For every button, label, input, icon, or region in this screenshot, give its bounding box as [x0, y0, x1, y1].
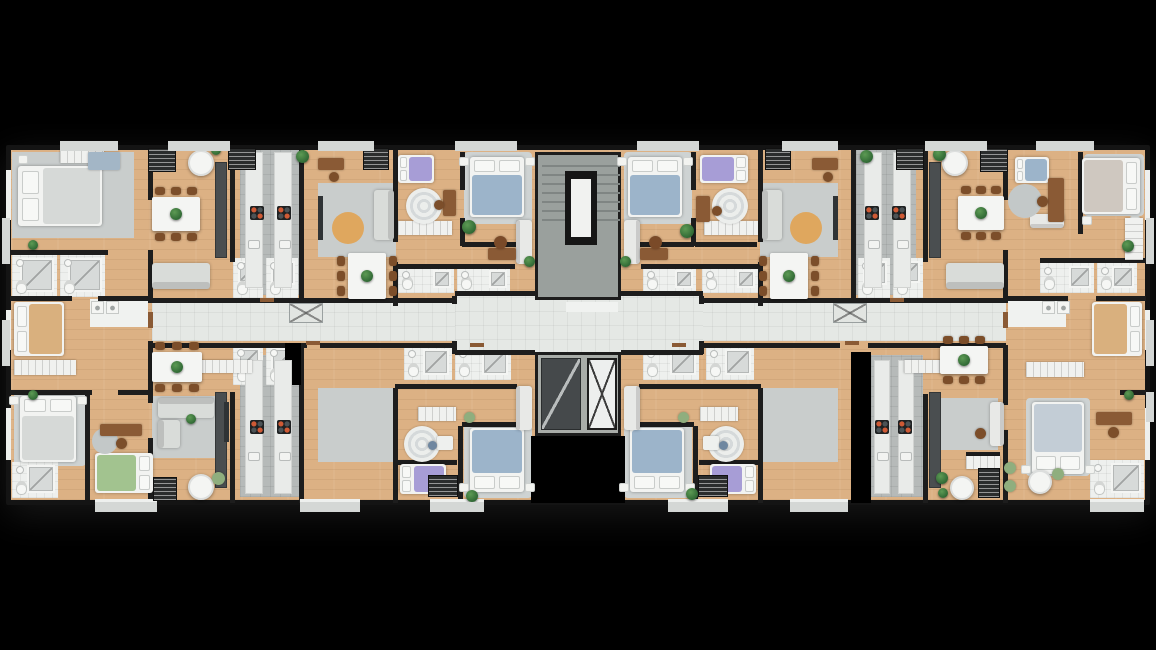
bed-pillow — [499, 476, 520, 489]
balcony-tab — [60, 141, 118, 151]
bed-duvet — [1084, 160, 1123, 212]
shower — [423, 349, 449, 375]
sofa — [990, 402, 1004, 446]
bed-pillow — [745, 466, 754, 477]
kitchen-counter — [864, 152, 882, 288]
stair-exit-mat — [566, 302, 618, 312]
toilet — [16, 481, 27, 495]
potted-plant — [524, 256, 535, 267]
dining-chair — [171, 187, 181, 195]
dining-chair — [187, 233, 197, 241]
kitchen-sink — [279, 452, 291, 461]
toilet — [16, 280, 27, 294]
ac-grill — [363, 148, 389, 170]
dining-chair — [337, 286, 345, 296]
pouf-green — [464, 412, 475, 423]
dining-chair — [991, 186, 1001, 194]
bed-pillow — [1130, 306, 1140, 327]
wall-segment — [230, 392, 235, 503]
bed — [1082, 158, 1140, 214]
dining-chair — [975, 376, 985, 384]
kitchen-counter — [274, 152, 292, 288]
bed-pillow — [400, 157, 407, 168]
stairwell — [535, 152, 621, 300]
bathroom-zone — [12, 462, 58, 498]
ac-grill — [896, 148, 924, 170]
wall-segment — [10, 250, 108, 255]
bathroom-zone — [398, 267, 454, 293]
bed-duvet — [702, 157, 734, 181]
door-leaf — [260, 298, 274, 302]
balcony-tab — [430, 502, 484, 512]
bathroom-zone — [12, 255, 57, 297]
dining-chair — [759, 256, 767, 266]
balcony-tab — [668, 502, 728, 512]
bed-pillow — [745, 480, 754, 491]
balcony-tab — [1036, 141, 1094, 151]
sofa-back — [516, 220, 520, 264]
bed-duvet — [97, 455, 136, 491]
wall-segment — [455, 291, 535, 296]
bathroom-zone — [643, 267, 696, 293]
door-leaf — [1003, 312, 1008, 328]
bed-pillow — [402, 480, 411, 491]
wall-segment — [320, 343, 457, 348]
toilet — [710, 363, 721, 377]
table-plant — [783, 270, 795, 282]
bath-sink — [237, 349, 245, 357]
potted-plant — [620, 256, 631, 267]
pouf-brown — [494, 236, 507, 249]
washing-machine — [1042, 301, 1055, 314]
wall-segment — [923, 394, 928, 503]
toilet — [64, 280, 75, 294]
dining-chair — [976, 186, 986, 194]
shower — [737, 270, 755, 288]
round-table — [188, 150, 214, 176]
cooktop — [865, 206, 879, 220]
dining-chair — [943, 376, 953, 384]
nightstand — [525, 483, 535, 492]
balcony-tab — [790, 502, 848, 512]
bed-duvet — [1034, 404, 1082, 452]
bed — [1032, 402, 1084, 474]
wall-segment — [395, 384, 517, 389]
building-notch — [851, 352, 871, 503]
desk-chair — [116, 438, 127, 449]
bath-sink — [706, 271, 714, 279]
potted-plant — [1124, 390, 1134, 400]
round-rug-orange — [332, 212, 364, 244]
nightstand — [525, 157, 535, 166]
nightstand — [9, 396, 19, 405]
pouf-green — [1052, 468, 1064, 480]
bath-sink — [16, 259, 24, 267]
desk — [696, 196, 710, 222]
potted-plant — [466, 490, 478, 502]
wall-segment — [641, 264, 761, 269]
potted-plant — [186, 414, 196, 424]
bed-duvet — [43, 168, 100, 224]
wall-segment — [85, 395, 90, 500]
shower — [1111, 463, 1141, 493]
desk-chair — [823, 172, 833, 182]
cooktop — [892, 206, 906, 220]
kitchen-sink — [279, 240, 291, 249]
sofa — [762, 190, 782, 240]
table-plant — [171, 361, 183, 373]
wall-segment — [851, 150, 856, 303]
dining-chair — [155, 187, 165, 195]
bed-pillow — [1017, 159, 1024, 169]
bed — [470, 157, 524, 217]
balcony-tab — [455, 141, 517, 151]
bed-duvet — [22, 416, 74, 460]
washing-machine — [1057, 301, 1070, 314]
wall-segment — [393, 388, 398, 503]
kitchen-sink — [248, 452, 260, 461]
potted-plant — [936, 472, 948, 484]
shower — [1069, 266, 1091, 288]
dining-chair — [961, 186, 971, 194]
bath-sink — [647, 271, 655, 279]
door-leaf — [148, 312, 153, 328]
nightstand — [1021, 465, 1031, 474]
table-plant — [958, 354, 970, 366]
bed-pillow — [632, 160, 653, 172]
bath-sink — [402, 271, 410, 279]
dining-chair — [975, 336, 985, 344]
building-notch — [531, 436, 625, 503]
nightstand — [77, 396, 87, 405]
doormat — [833, 303, 867, 323]
desk — [703, 436, 719, 450]
tv-unit — [318, 196, 323, 240]
balcony-tab — [1146, 218, 1154, 264]
wall-segment — [1003, 345, 1008, 405]
bed-pillow — [139, 456, 151, 471]
cooktop — [875, 420, 889, 434]
desk-chair — [1108, 427, 1119, 438]
desk-chair — [1037, 196, 1048, 207]
dining-chair — [189, 384, 199, 392]
dining-chair — [811, 286, 819, 296]
balcony-tab — [925, 141, 987, 151]
kitchen-counter-dark — [215, 162, 227, 258]
wardrobe — [14, 360, 76, 375]
bed — [14, 302, 64, 356]
bed-duvet — [409, 157, 432, 181]
nightstand — [18, 155, 28, 164]
bed — [630, 428, 684, 492]
round-table — [950, 476, 974, 500]
toilet — [1044, 276, 1055, 290]
bathroom-zone — [1040, 263, 1094, 293]
balcony-tab — [2, 218, 10, 264]
desk-chair — [428, 441, 437, 450]
dresser — [88, 152, 120, 170]
balcony-tab — [1090, 502, 1144, 512]
desk-chair — [434, 200, 444, 210]
bed-duvet — [1025, 159, 1047, 181]
balcony-tab — [95, 502, 157, 512]
potted-plant — [28, 390, 38, 400]
dining-chair — [337, 256, 345, 266]
dining-chair — [155, 384, 165, 392]
bed-pillow — [474, 476, 495, 489]
bed-pillow — [402, 466, 411, 477]
washing-machine — [106, 301, 119, 314]
shower — [1112, 266, 1134, 288]
wardrobe — [1125, 218, 1143, 260]
bed-duvet — [630, 175, 680, 215]
desk — [318, 158, 344, 170]
dining-chair — [155, 233, 165, 241]
dining-chair — [187, 187, 197, 195]
desk-chair — [975, 428, 986, 439]
sofa — [158, 420, 180, 448]
toilet — [1101, 276, 1112, 290]
sofa — [516, 386, 532, 430]
ac-grill — [980, 148, 1008, 172]
cooktop — [250, 206, 264, 220]
balcony-tab — [1146, 320, 1154, 366]
potted-plant — [860, 150, 873, 163]
wall-segment — [10, 296, 72, 301]
sofa — [946, 263, 1004, 289]
round-table — [1028, 470, 1052, 494]
shower — [27, 465, 55, 493]
sofa-back — [158, 398, 214, 404]
bed-pillow — [24, 399, 45, 412]
bed-duvet — [632, 430, 682, 473]
door-leaf — [890, 298, 904, 302]
dining-chair — [759, 271, 767, 281]
wardrobe — [418, 407, 456, 421]
dining-chair — [389, 256, 397, 266]
table-plant — [361, 270, 373, 282]
tv-unit — [224, 402, 229, 442]
balcony-tab — [318, 141, 374, 151]
bath-sink — [461, 271, 469, 279]
desk-chair — [712, 206, 722, 216]
bed — [628, 157, 682, 217]
desk — [100, 424, 142, 436]
pouf-green — [1004, 462, 1016, 474]
bed-duvet — [472, 430, 522, 473]
desk-chair — [329, 172, 339, 182]
bath-sink — [408, 350, 416, 358]
sofa — [152, 263, 210, 289]
doormat — [289, 303, 323, 323]
potted-plant — [1122, 240, 1134, 252]
dining-chair — [943, 336, 953, 344]
desk — [443, 190, 456, 216]
nightstand — [617, 157, 627, 166]
shower — [725, 349, 751, 375]
bath-sink — [1094, 464, 1102, 472]
kitchen-sink — [877, 452, 889, 461]
bath-sink — [270, 349, 278, 357]
dining-chair — [337, 271, 345, 281]
bed — [18, 166, 102, 226]
potted-plant — [462, 220, 476, 234]
kitchen-sink — [897, 240, 909, 249]
elevator-car — [541, 358, 581, 430]
ac-grill — [148, 148, 176, 172]
bed — [1092, 302, 1142, 356]
bath-sink — [1101, 267, 1109, 275]
bathroom-zone — [60, 255, 105, 297]
window-slit — [6, 170, 11, 220]
balcony-tab — [300, 502, 360, 512]
dining-chair — [991, 232, 1001, 240]
gray-floor-zone — [318, 388, 396, 462]
toilet — [459, 363, 470, 377]
kitchen-sink — [900, 452, 912, 461]
nightstand — [619, 483, 629, 492]
dining-chair — [759, 286, 767, 296]
bath-sink — [64, 259, 72, 267]
sofa-back — [152, 282, 210, 289]
gray-floor-zone — [760, 388, 838, 462]
bathroom-zone — [404, 346, 452, 380]
wall-segment — [455, 350, 535, 355]
sofa-back — [1000, 402, 1004, 446]
toilet — [647, 363, 658, 377]
bed — [1015, 157, 1049, 183]
bed — [95, 453, 153, 493]
sofa-back — [388, 190, 394, 240]
balcony-tab — [168, 141, 230, 151]
window-slit — [1145, 170, 1150, 220]
desk-chair — [719, 441, 728, 450]
desk — [1048, 178, 1064, 222]
bath-sink — [1044, 267, 1052, 275]
pouf-green — [678, 412, 689, 423]
tv-unit — [833, 196, 838, 240]
ac-grill — [153, 477, 177, 501]
bed-duvet — [472, 175, 522, 215]
cooktop — [277, 420, 291, 434]
bed-pillow — [736, 157, 746, 168]
bath-sink — [237, 262, 245, 270]
sofa-back — [762, 190, 768, 240]
toilet — [408, 363, 419, 377]
desk — [488, 248, 516, 260]
potted-plant — [296, 150, 309, 163]
table-plant — [170, 208, 182, 220]
wall-segment — [695, 242, 757, 247]
dining-chair — [811, 271, 819, 281]
wall-segment — [758, 388, 763, 503]
shower — [489, 270, 507, 288]
ac-grill — [765, 148, 791, 170]
dining-chair — [389, 286, 397, 296]
door-leaf — [470, 343, 484, 347]
toilet — [1094, 481, 1105, 495]
bed-pillow — [17, 331, 27, 352]
wall-segment — [639, 384, 761, 389]
wall-segment — [118, 390, 148, 395]
dining-chair — [171, 233, 181, 241]
sofa-back — [158, 420, 164, 448]
desk — [437, 436, 453, 450]
stair-shaft-inner — [571, 179, 591, 237]
bed-pillow — [1130, 331, 1140, 352]
dining-chair — [172, 384, 182, 392]
nightstand — [459, 157, 469, 166]
dining-chair — [811, 256, 819, 266]
wall-segment — [1096, 296, 1146, 301]
dining-chair — [976, 232, 986, 240]
bed-pillow — [22, 198, 39, 221]
bed-pillow — [400, 170, 407, 181]
bed-pillow — [1060, 456, 1080, 470]
dining-chair — [961, 232, 971, 240]
sofa — [374, 190, 394, 240]
wall-segment — [621, 350, 703, 355]
bed-pillow — [22, 171, 39, 194]
ac-grill — [698, 475, 728, 497]
bathroom-zone — [457, 267, 510, 293]
sofa-back — [946, 282, 1004, 289]
nightstand — [1085, 465, 1095, 474]
bed-pillow — [1126, 162, 1138, 183]
desk — [1096, 412, 1132, 425]
nightstand — [683, 157, 693, 166]
dining-chair — [389, 271, 397, 281]
potted-plant — [680, 224, 694, 238]
table-plant — [975, 207, 987, 219]
wardrobe — [1026, 362, 1084, 377]
potted-plant — [28, 240, 38, 250]
bed-pillow — [474, 160, 495, 172]
kitchen-sink — [868, 240, 880, 249]
balcony-tab — [2, 320, 10, 366]
bed-pillow — [659, 476, 680, 489]
bathroom-zone — [706, 346, 754, 380]
wall-segment — [701, 343, 840, 348]
kitchen-sink — [248, 240, 260, 249]
bed-pillow — [499, 160, 520, 172]
balcony-tab — [1146, 392, 1154, 422]
wall-segment — [299, 150, 304, 303]
wall-segment — [621, 291, 703, 296]
pouf-green — [212, 472, 225, 485]
bed-pillow — [17, 306, 27, 327]
bed-pillow — [50, 399, 71, 412]
bed-duvet — [29, 304, 62, 354]
sofa-back — [516, 386, 520, 430]
cooktop — [898, 420, 912, 434]
bed-pillow — [1126, 188, 1138, 209]
sofa-back — [636, 386, 640, 430]
dining-chair — [155, 342, 165, 350]
floor-plan-render — [0, 0, 1156, 650]
desk — [640, 248, 668, 260]
potted-plant — [686, 488, 698, 500]
ac-grill — [978, 468, 1000, 498]
round-table — [188, 474, 214, 500]
bed-pillow — [634, 476, 655, 489]
wardrobe — [700, 407, 738, 421]
door-leaf — [672, 343, 686, 347]
nightstand — [1082, 216, 1092, 225]
bed-pillow — [1036, 456, 1056, 470]
bed — [470, 428, 524, 492]
bed-pillow — [139, 475, 151, 490]
